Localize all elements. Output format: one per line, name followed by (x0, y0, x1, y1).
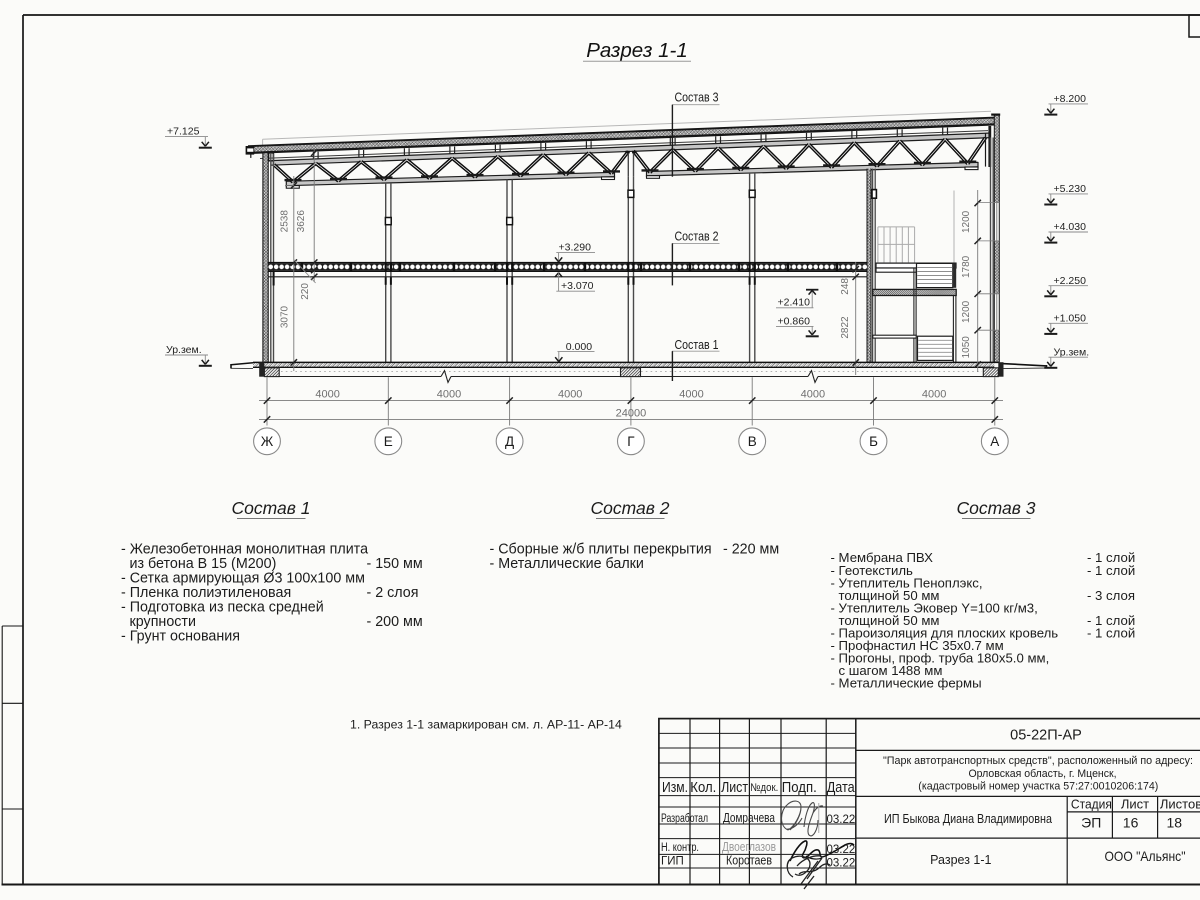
svg-text:- Металлические балки: - Металлические балки (490, 556, 644, 572)
svg-text:ЭП: ЭП (1081, 814, 1101, 830)
svg-text:+2.250: +2.250 (1054, 275, 1087, 287)
svg-text:- 2 слоя: - 2 слоя (367, 585, 419, 601)
svg-text:Г: Г (627, 434, 635, 449)
svg-text:- 220 мм: - 220 мм (723, 541, 779, 557)
svg-text:03.22: 03.22 (827, 857, 856, 869)
svg-text:- 1 слой: - 1 слой (1087, 563, 1135, 578)
svg-text:Состав 1: Состав 1 (232, 498, 311, 518)
svg-text:Н. контр.: Н. контр. (661, 842, 699, 854)
svg-text:+1.050: +1.050 (1054, 313, 1087, 325)
svg-text:Разрез 1-1: Разрез 1-1 (930, 853, 991, 867)
svg-text:Подп.: Подп. (782, 780, 817, 796)
svg-text:1. Разрез 1-1 замаркирован см.: 1. Разрез 1-1 замаркирован см. л. АР-11-… (350, 718, 622, 732)
svg-text:2538: 2538 (280, 210, 291, 233)
svg-text:- 1 слой: - 1 слой (1087, 626, 1135, 641)
svg-text:Ур.зем.: Ур.зем. (1054, 346, 1090, 358)
svg-text:18: 18 (1167, 814, 1183, 830)
svg-text:ГИП: ГИП (661, 856, 684, 868)
svg-text:03.22: 03.22 (827, 814, 856, 826)
svg-text:Разрез 1-1: Разрез 1-1 (586, 39, 688, 62)
svg-text:3626: 3626 (296, 210, 307, 233)
svg-text:1050: 1050 (961, 336, 972, 359)
svg-text:220: 220 (300, 283, 311, 300)
svg-text:Ур.зем.: Ур.зем. (166, 344, 202, 356)
svg-text:Состав 2: Состав 2 (675, 229, 719, 243)
svg-text:"Парк автотранспортных средств: "Парк автотранспортных средств", располо… (883, 755, 1193, 767)
svg-text:из бетона В 15 (М200): из бетона В 15 (М200) (130, 556, 277, 572)
svg-text:+5.230: +5.230 (1054, 183, 1087, 195)
svg-text:крупности: крупности (130, 614, 196, 630)
svg-text:+2.410: +2.410 (778, 297, 811, 309)
svg-text:Ж: Ж (261, 434, 274, 449)
svg-text:4000: 4000 (801, 388, 825, 400)
svg-text:Домрачева: Домрачева (723, 811, 775, 825)
svg-text:Б: Б (869, 434, 878, 449)
svg-text:4000: 4000 (922, 388, 946, 400)
svg-text:Листов: Листов (1160, 797, 1200, 812)
svg-text:1780: 1780 (961, 255, 972, 278)
svg-text:(кадастровый номер участка 57:: (кадастровый номер участка 57:27:0010206… (918, 780, 1158, 792)
svg-text:4000: 4000 (558, 388, 582, 400)
svg-text:1200: 1200 (961, 300, 972, 323)
svg-text:+8.200: +8.200 (1054, 93, 1087, 105)
svg-text:Лист: Лист (1121, 797, 1149, 812)
svg-text:- 150 мм: - 150 мм (367, 556, 423, 572)
svg-text:3070: 3070 (280, 305, 291, 328)
svg-text:Лист: Лист (721, 780, 748, 796)
svg-text:- 3 слоя: - 3 слоя (1087, 588, 1135, 603)
svg-text:4000: 4000 (315, 388, 339, 400)
svg-text:ООО "Альянс": ООО "Альянс" (1105, 848, 1186, 864)
svg-text:0.000: 0.000 (566, 341, 592, 353)
svg-text:Орловская область, г. Мценск,: Орловская область, г. Мценск, (969, 768, 1117, 780)
svg-text:16: 16 (1123, 814, 1139, 830)
svg-text:Состав 3: Состав 3 (957, 498, 1036, 518)
svg-text:248: 248 (840, 278, 851, 295)
svg-text:Дата: Дата (827, 780, 856, 796)
svg-text:+0.860: +0.860 (778, 315, 811, 327)
svg-text:В: В (748, 434, 757, 449)
svg-text:2822: 2822 (840, 316, 851, 339)
svg-text:Двоеглазов: Двоеглазов (722, 840, 776, 854)
svg-text:+3.070: +3.070 (561, 280, 594, 292)
svg-text:- Металлические фермы: - Металлические фермы (831, 676, 982, 691)
svg-text:А: А (990, 434, 999, 449)
svg-text:- Пленка полиэтиленовая: - Пленка полиэтиленовая (121, 585, 291, 601)
svg-text:+3.290: +3.290 (559, 241, 592, 253)
svg-text:Состав 2: Состав 2 (591, 498, 670, 518)
svg-text:4000: 4000 (437, 388, 461, 400)
svg-text:Е: Е (384, 434, 393, 449)
svg-text:05-22П-АР: 05-22П-АР (1010, 728, 1082, 744)
svg-text:- Грунт основания: - Грунт основания (121, 629, 240, 645)
svg-text:Состав 1: Состав 1 (675, 338, 719, 352)
svg-text:4000: 4000 (679, 388, 703, 400)
svg-text:Коротаев: Коротаев (726, 854, 772, 868)
svg-text:24000: 24000 (616, 407, 647, 419)
svg-text:№док.: №док. (750, 782, 778, 794)
svg-text:+4.030: +4.030 (1054, 221, 1087, 233)
svg-text:1200: 1200 (961, 210, 972, 233)
svg-text:Состав 3: Состав 3 (675, 91, 719, 105)
svg-text:Стадия: Стадия (1071, 797, 1112, 812)
svg-text:ИП Быкова Диана Владимировна: ИП Быкова Диана Владимировна (884, 811, 1053, 826)
svg-text:- 200 мм: - 200 мм (367, 614, 423, 630)
svg-text:Разработал: Разработал (661, 813, 708, 825)
svg-text:Изм.: Изм. (662, 780, 688, 796)
svg-text:Д: Д (505, 434, 514, 449)
svg-text:+7.125: +7.125 (167, 126, 200, 138)
svg-text:Кол.: Кол. (690, 780, 716, 796)
